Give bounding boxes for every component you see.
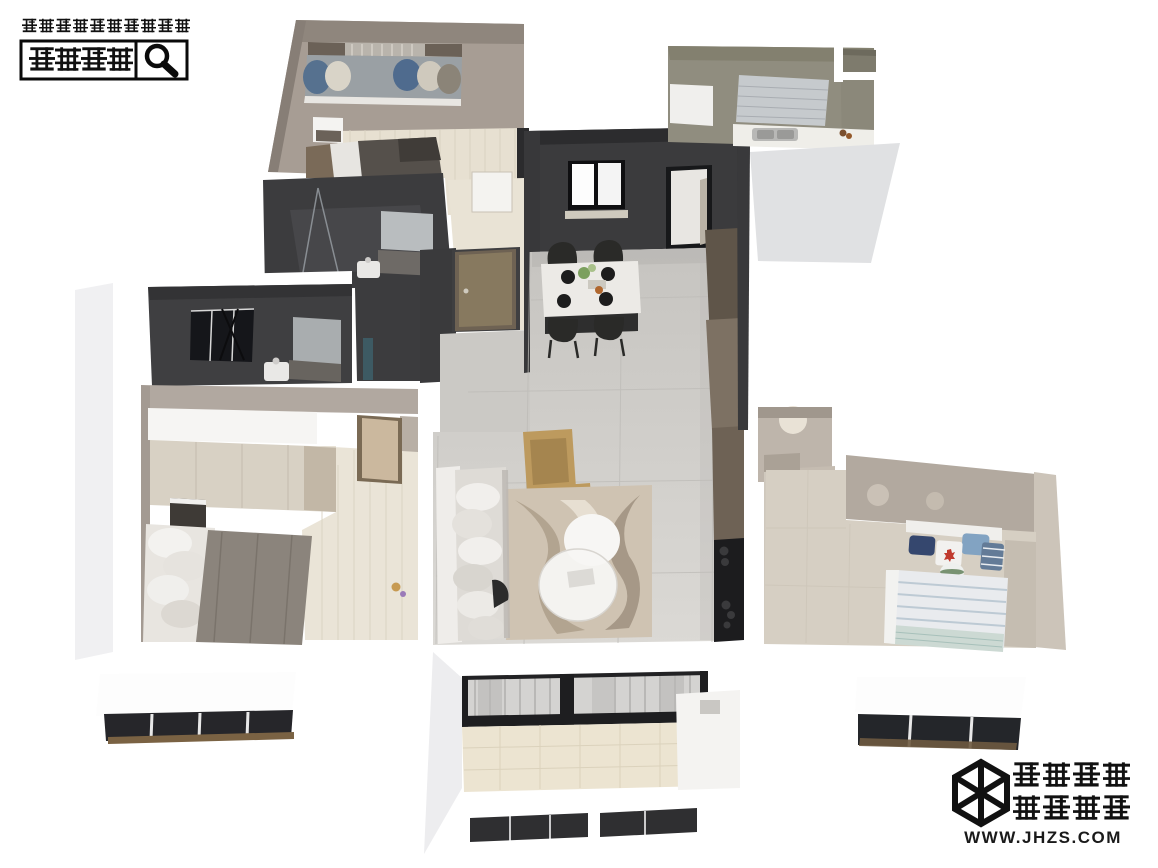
svg-text:WWW.JHZS.COM: WWW.JHZS.COM xyxy=(964,828,1122,847)
